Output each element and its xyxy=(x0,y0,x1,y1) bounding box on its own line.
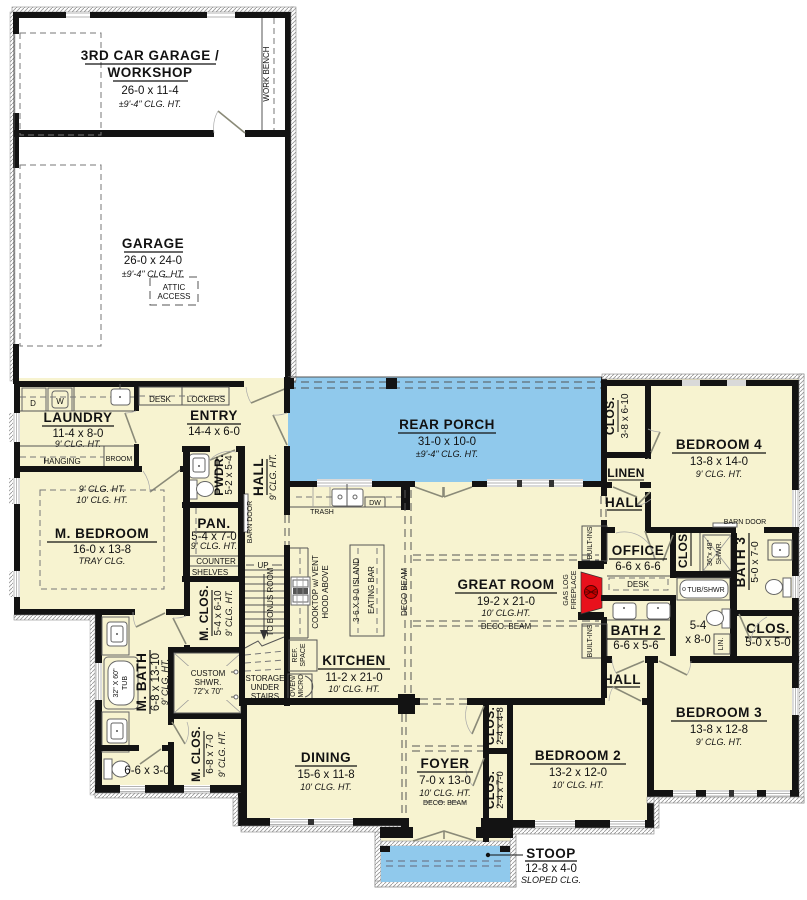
svg-text:TRASH: TRASH xyxy=(310,509,334,516)
svg-text:LINEN: LINEN xyxy=(607,466,645,480)
svg-text:UNDER: UNDER xyxy=(251,683,280,692)
svg-text:EATING BAR: EATING BAR xyxy=(367,566,376,614)
svg-text:STOOP: STOOP xyxy=(526,846,576,861)
svg-text:COUNTER: COUNTER xyxy=(196,557,236,566)
svg-text:HALL: HALL xyxy=(605,495,643,510)
svg-text:10' CLG. HT.: 10' CLG. HT. xyxy=(76,495,127,505)
svg-text:HOOD ABOVE: HOOD ABOVE xyxy=(321,565,330,618)
svg-text:26-0 x 24-0: 26-0 x 24-0 xyxy=(124,255,182,267)
svg-text:9' CLG. HT.: 9' CLG. HT. xyxy=(79,484,125,494)
svg-text:5-0 x 5-0: 5-0 x 5-0 xyxy=(745,637,790,649)
svg-text:BARN DOOR: BARN DOOR xyxy=(724,519,766,526)
svg-text:BUILT-INS: BUILT-INS xyxy=(587,526,594,559)
svg-text:CLOS.: CLOS. xyxy=(676,530,690,568)
svg-text:COOKTOP w/ VENT: COOKTOP w/ VENT xyxy=(311,555,320,629)
svg-text:31-0 x 10-0: 31-0 x 10-0 xyxy=(418,436,476,448)
svg-text:DECO. BEAM: DECO. BEAM xyxy=(481,622,532,631)
svg-text:±9'-4" CLG. HT.: ±9'-4" CLG. HT. xyxy=(416,449,479,459)
svg-text:9' CLG. HT.: 9' CLG. HT. xyxy=(224,590,234,636)
svg-text:TUB/SHWR: TUB/SHWR xyxy=(687,587,724,594)
svg-text:GREAT ROOM: GREAT ROOM xyxy=(458,577,555,592)
svg-text:6-6 x 6-6: 6-6 x 6-6 xyxy=(615,561,660,573)
svg-text:M. BATH: M. BATH xyxy=(134,653,149,712)
svg-text:WORK BENCH: WORK BENCH xyxy=(262,46,271,101)
svg-text:CLOS.: CLOS. xyxy=(603,397,617,435)
svg-text:5-4 x 6-10: 5-4 x 6-10 xyxy=(213,590,224,635)
svg-text:DESK: DESK xyxy=(149,395,171,404)
svg-text:FIREPLACE: FIREPLACE xyxy=(571,570,578,609)
svg-text:SLOPED CLG.: SLOPED CLG. xyxy=(521,875,581,885)
svg-text:12-8 x 4-0: 12-8 x 4-0 xyxy=(525,863,577,875)
svg-text:5-4: 5-4 xyxy=(690,620,707,632)
svg-text:LIN.: LIN. xyxy=(718,638,725,651)
svg-text:9' CLG. HT.: 9' CLG. HT. xyxy=(55,439,101,449)
svg-text:16-0 x 13-8: 16-0 x 13-8 xyxy=(73,544,131,556)
svg-text:WORKSHOP: WORKSHOP xyxy=(108,65,193,80)
svg-text:11-2 x 21-0: 11-2 x 21-0 xyxy=(325,672,382,684)
svg-text:3-6 X 9-0 ISLAND: 3-6 X 9-0 ISLAND xyxy=(352,558,361,622)
svg-text:13-8 x 14-0: 13-8 x 14-0 xyxy=(690,456,748,468)
svg-text:PAN.: PAN. xyxy=(197,516,230,531)
svg-text:10' CLG. HT.: 10' CLG. HT. xyxy=(419,788,470,798)
svg-text:SPACE: SPACE xyxy=(300,643,307,667)
svg-text:6-8 x 7-0: 6-8 x 7-0 xyxy=(205,734,216,774)
svg-text:OVEN/: OVEN/ xyxy=(290,675,297,697)
svg-text:REAR PORCH: REAR PORCH xyxy=(399,417,495,432)
svg-text:D: D xyxy=(30,399,36,408)
svg-text:ATTIC: ATTIC xyxy=(163,283,186,292)
svg-text:9' CLG. HT.: 9' CLG. HT. xyxy=(696,737,742,747)
svg-text:9' CLG. HT.: 9' CLG. HT. xyxy=(191,541,237,551)
svg-text:DECO. BEAM: DECO. BEAM xyxy=(423,800,467,807)
svg-text:13-2 x 12-0: 13-2 x 12-0 xyxy=(549,767,607,779)
svg-text:±9'-4" CLG. HT.: ±9'-4" CLG. HT. xyxy=(119,99,182,109)
svg-text:15-6 x 11-8: 15-6 x 11-8 xyxy=(297,769,354,781)
svg-text:10' CLG. HT.: 10' CLG. HT. xyxy=(300,782,351,792)
svg-text:6-6 x 3-0: 6-6 x 3-0 xyxy=(124,765,169,777)
svg-text:9' CLG. HT.: 9' CLG. HT. xyxy=(268,454,278,500)
svg-text:3RD CAR GARAGE /: 3RD CAR GARAGE / xyxy=(81,48,220,63)
svg-text:ACCESS: ACCESS xyxy=(158,292,191,301)
svg-text:GARAGE: GARAGE xyxy=(122,236,184,251)
svg-text:REF.: REF. xyxy=(292,647,299,662)
svg-text:M. CLOS.: M. CLOS. xyxy=(197,585,211,641)
svg-text:TRAY CLG.: TRAY CLG. xyxy=(79,556,126,566)
svg-text:9' CLG. HT.: 9' CLG. HT. xyxy=(217,731,227,777)
svg-text:LOCKERS: LOCKERS xyxy=(187,395,225,404)
svg-text:DW: DW xyxy=(369,500,381,507)
svg-text:19-2 x 21-0: 19-2 x 21-0 xyxy=(477,596,535,608)
svg-text:7-0 x 13-0: 7-0 x 13-0 xyxy=(419,775,471,787)
svg-text:BATH 2: BATH 2 xyxy=(611,623,662,638)
svg-text:SHWR.: SHWR. xyxy=(716,541,723,564)
svg-text:2-4 x 4-8: 2-4 x 4-8 xyxy=(495,707,506,745)
svg-text:TO BONUS ROOM: TO BONUS ROOM xyxy=(266,567,275,636)
svg-text:5-2 x 5-4: 5-2 x 5-4 xyxy=(224,455,235,495)
svg-text:FOYER: FOYER xyxy=(420,756,469,771)
svg-text:9' CLG. HT.: 9' CLG. HT. xyxy=(696,469,742,479)
svg-text:BEDROOM 3: BEDROOM 3 xyxy=(676,705,762,720)
svg-text:14-4 x 6-0: 14-4 x 6-0 xyxy=(188,426,240,438)
svg-text:M. BEDROOM: M. BEDROOM xyxy=(55,526,149,541)
svg-text:KITCHEN: KITCHEN xyxy=(322,653,386,668)
svg-text:BARN DOOR: BARN DOOR xyxy=(247,501,254,543)
svg-text:DECO BEAM: DECO BEAM xyxy=(400,568,409,616)
svg-text:10' CLG. HT.: 10' CLG. HT. xyxy=(552,780,603,790)
svg-text:BUILT-INS: BUILT-INS xyxy=(587,624,594,657)
svg-text:3-8 x 6-10: 3-8 x 6-10 xyxy=(620,393,631,438)
svg-text:ENTRY: ENTRY xyxy=(190,408,238,423)
svg-text:BEDROOM 4: BEDROOM 4 xyxy=(676,437,762,452)
svg-text:MICRO: MICRO xyxy=(298,674,305,698)
svg-text:SHELVES: SHELVES xyxy=(192,568,228,577)
svg-text:2-4 x 7-0: 2-4 x 7-0 xyxy=(495,771,506,809)
svg-text:32" X 60": 32" X 60" xyxy=(113,668,120,698)
svg-text:GAS LOG: GAS LOG xyxy=(563,574,570,606)
svg-text:CUSTOM: CUSTOM xyxy=(191,669,226,678)
svg-text:DINING: DINING xyxy=(301,750,351,765)
svg-text:10' CLG. HT.: 10' CLG. HT. xyxy=(328,684,379,694)
svg-text:HALL: HALL xyxy=(251,458,266,496)
svg-text:x 8-0: x 8-0 xyxy=(685,634,711,646)
svg-text:36"x 48": 36"x 48" xyxy=(707,539,714,566)
svg-text:BEDROOM 2: BEDROOM 2 xyxy=(535,748,621,763)
svg-text:6-6 x 5-6: 6-6 x 5-6 xyxy=(613,640,658,652)
svg-text:SHWR.: SHWR. xyxy=(195,678,222,687)
svg-text:M. CLOS.: M. CLOS. xyxy=(189,726,203,782)
svg-text:HANGING: HANGING xyxy=(43,457,80,466)
svg-text:OFFICE: OFFICE xyxy=(612,543,665,558)
svg-text:DESK: DESK xyxy=(627,580,649,589)
svg-text:26-0 x 11-4: 26-0 x 11-4 xyxy=(121,85,179,97)
svg-text:TUB: TUB xyxy=(122,676,129,690)
svg-text:LAUNDRY: LAUNDRY xyxy=(44,410,113,425)
svg-text:5-0 x 7-0: 5-0 x 7-0 xyxy=(749,541,761,583)
svg-text:STORAGE: STORAGE xyxy=(246,674,285,683)
svg-text:BROOM: BROOM xyxy=(106,456,133,463)
svg-text:72"x 70": 72"x 70" xyxy=(193,687,223,696)
svg-text:W: W xyxy=(56,397,64,406)
svg-text:13-8 x 12-8: 13-8 x 12-8 xyxy=(690,724,748,736)
svg-text:10' CLG.HT.: 10' CLG.HT. xyxy=(482,608,531,618)
svg-text:HALL: HALL xyxy=(603,672,641,687)
